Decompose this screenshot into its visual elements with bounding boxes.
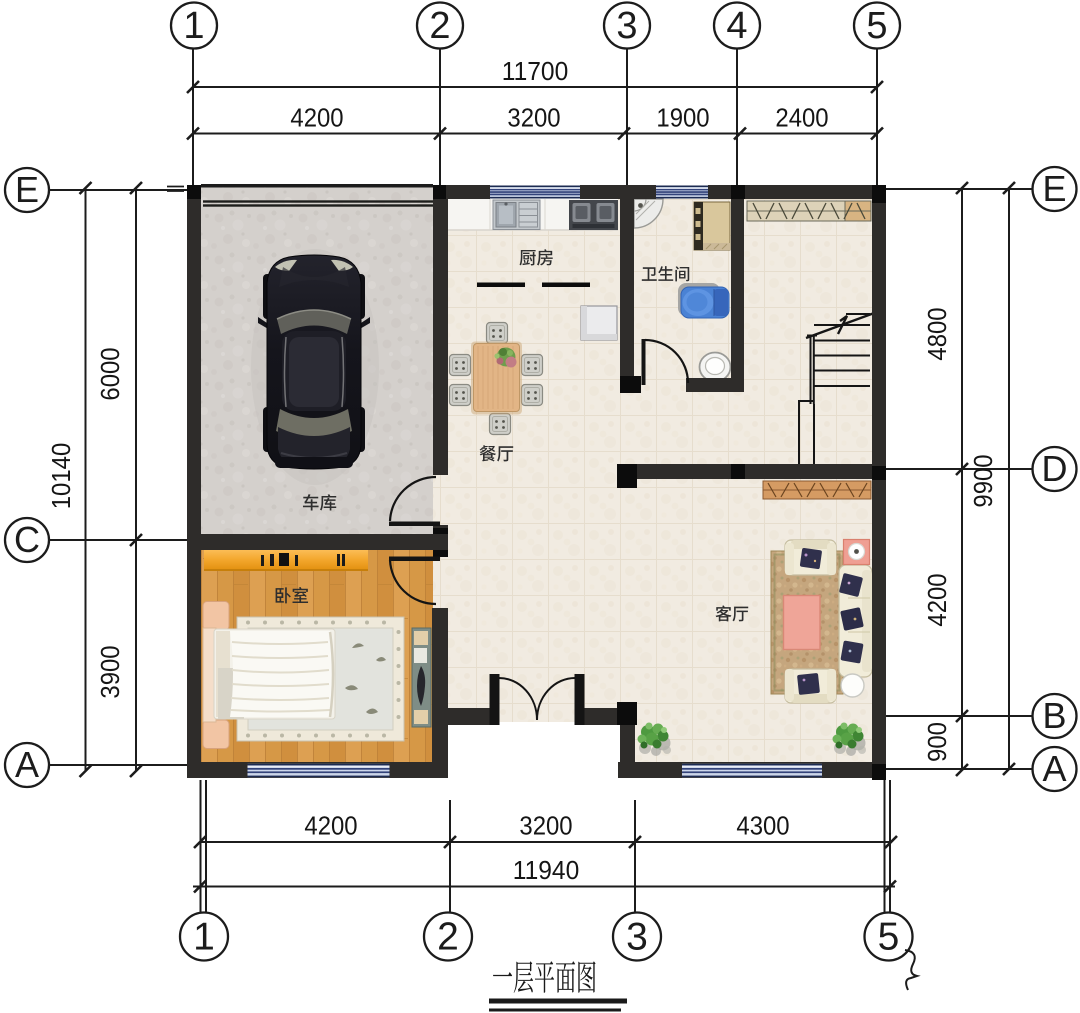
- svg-text:5: 5: [866, 5, 887, 47]
- svg-text:2400: 2400: [775, 103, 828, 133]
- svg-text:6000: 6000: [95, 347, 125, 400]
- svg-text:3200: 3200: [519, 811, 572, 841]
- svg-text:11940: 11940: [513, 855, 580, 885]
- svg-text:4300: 4300: [736, 811, 789, 841]
- svg-text:B: B: [1042, 695, 1066, 736]
- svg-text:2: 2: [437, 915, 459, 958]
- svg-text:11700: 11700: [502, 56, 569, 86]
- svg-text:3: 3: [616, 5, 637, 47]
- svg-text:1: 1: [183, 5, 204, 47]
- svg-text:3200: 3200: [507, 103, 560, 133]
- svg-text:D: D: [1042, 448, 1068, 489]
- svg-text:10140: 10140: [46, 443, 76, 510]
- svg-text:E: E: [15, 169, 39, 210]
- svg-text:4200: 4200: [304, 811, 357, 841]
- svg-text:4800: 4800: [922, 307, 952, 360]
- svg-text:A: A: [1042, 748, 1066, 789]
- svg-text:E: E: [1042, 168, 1066, 209]
- svg-text:5: 5: [878, 915, 900, 958]
- svg-text:C: C: [14, 519, 40, 560]
- svg-text:900: 900: [922, 722, 952, 762]
- svg-text:1: 1: [193, 915, 215, 958]
- svg-text:4: 4: [726, 5, 747, 47]
- svg-text:3: 3: [626, 915, 648, 958]
- svg-text:1900: 1900: [656, 103, 709, 133]
- svg-text:4200: 4200: [922, 573, 952, 626]
- svg-text:A: A: [15, 744, 39, 785]
- svg-text:4200: 4200: [290, 103, 343, 133]
- svg-text:2: 2: [429, 5, 450, 47]
- svg-text:3900: 3900: [95, 645, 125, 698]
- svg-text:9900: 9900: [968, 454, 998, 507]
